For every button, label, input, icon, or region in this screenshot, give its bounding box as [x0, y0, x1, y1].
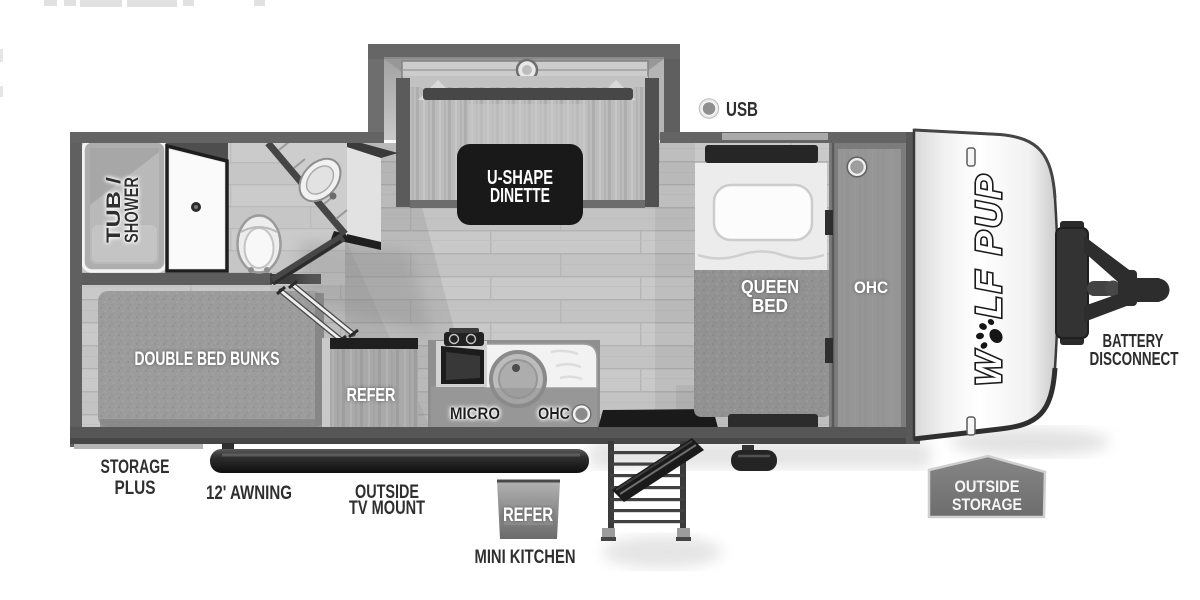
svg-text:TV MOUNT: TV MOUNT	[349, 498, 425, 519]
svg-text:MINI KITCHEN: MINI KITCHEN	[475, 547, 576, 568]
svg-text:OHC: OHC	[538, 404, 570, 423]
svg-text:USB: USB	[726, 99, 758, 121]
svg-text:W: W	[968, 349, 1009, 386]
svg-text:DOUBLE BED BUNKS: DOUBLE BED BUNKS	[135, 349, 280, 370]
svg-text:REFER: REFER	[347, 385, 396, 405]
svg-text:PLUS: PLUS	[115, 478, 156, 499]
svg-text:STORAGE: STORAGE	[952, 495, 1022, 514]
svg-text:BATTERY: BATTERY	[1103, 331, 1164, 351]
svg-text:MICRO: MICRO	[450, 404, 500, 423]
svg-text:12' AWNING: 12' AWNING	[206, 483, 292, 504]
svg-text:BED: BED	[752, 296, 788, 316]
svg-text:SHOWER: SHOWER	[122, 177, 143, 243]
svg-text:STORAGE: STORAGE	[101, 457, 170, 478]
svg-text:DISCONNECT: DISCONNECT	[1090, 349, 1179, 369]
svg-text:OHC: OHC	[854, 278, 888, 297]
svg-text:OUTSIDE: OUTSIDE	[955, 477, 1020, 496]
svg-text:QUEEN: QUEEN	[741, 277, 799, 297]
svg-text:LF PUP: LF PUP	[968, 172, 1009, 318]
svg-text:DINETTE: DINETTE	[490, 185, 550, 207]
svg-text:REFER: REFER	[503, 505, 553, 526]
